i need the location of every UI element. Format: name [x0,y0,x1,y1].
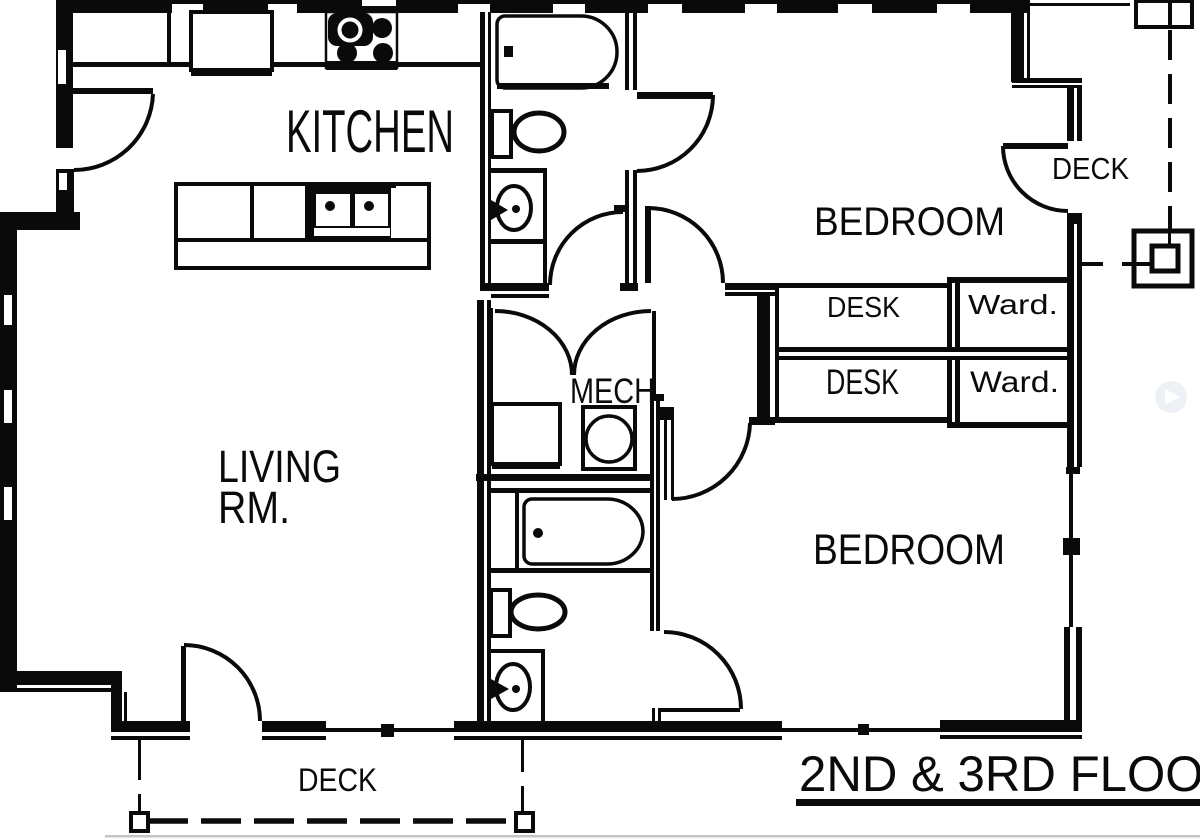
svg-text:Ward.: Ward. [970,366,1059,399]
svg-text:DESK: DESK [826,363,899,402]
svg-text:RM.: RM. [218,482,290,533]
svg-text:MECH: MECH [570,372,655,411]
svg-text:Ward.: Ward. [968,289,1058,320]
svg-text:KITCHEN: KITCHEN [286,98,454,165]
svg-text:BEDROOM: BEDROOM [814,200,1005,244]
svg-text:2ND & 3RD FLOOR: 2ND & 3RD FLOOR [799,746,1200,802]
svg-text:BEDROOM: BEDROOM [813,526,1005,574]
svg-text:DESK: DESK [827,292,901,324]
svg-text:DECK: DECK [298,762,377,798]
svg-text:DECK: DECK [1052,151,1129,186]
